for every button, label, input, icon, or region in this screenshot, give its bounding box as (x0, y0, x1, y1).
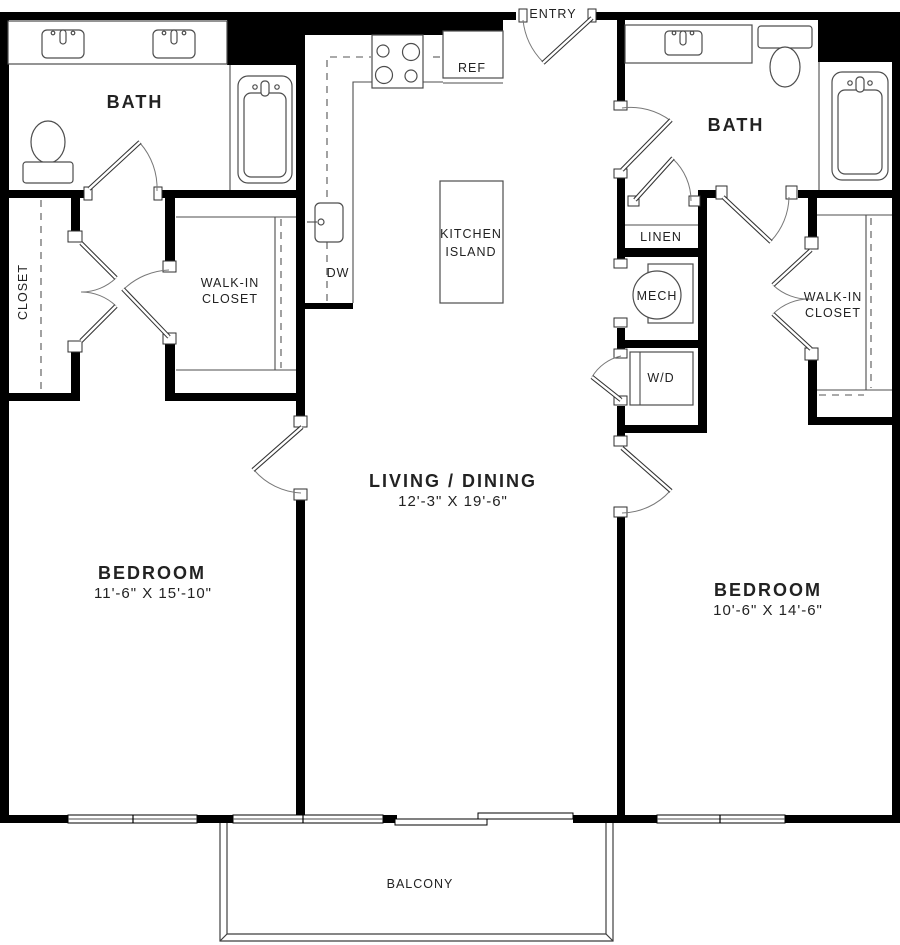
walls (0, 12, 900, 823)
sliding-door-panel (395, 819, 487, 825)
washer-dryer-label: W/D (647, 371, 674, 385)
linen-label: LINEN (640, 230, 682, 244)
floorplan-drawing: ENTRY BATH BATH REF DW KITCHEN ISLAND LI… (0, 0, 900, 945)
kitchen-island-label-1: KITCHEN (440, 227, 502, 241)
windows (68, 813, 785, 825)
floorplan-page: ENTRY BATH BATH REF DW KITCHEN ISLAND LI… (0, 0, 900, 945)
closet-left-label: CLOSET (16, 264, 30, 320)
walkin-left-label-1: WALK-IN (201, 276, 260, 290)
mech-label: MECH (637, 289, 678, 303)
sliding-door-panel (478, 813, 573, 819)
tub-faucet (856, 77, 864, 92)
faucet (680, 31, 686, 45)
kitchen-faucet (318, 219, 324, 225)
walkin-left-label-2: CLOSET (202, 292, 258, 306)
bedroom-right-label: BEDROOM (714, 580, 822, 600)
walkin-right-label-1: WALK-IN (804, 290, 863, 304)
entry-label: ENTRY (529, 7, 576, 21)
bath-left-label: BATH (107, 92, 164, 112)
labels: ENTRY BATH BATH REF DW KITCHEN ISLAND LI… (16, 7, 862, 891)
toilet-bowl (770, 47, 800, 87)
toilet-tank (758, 26, 812, 48)
living-dining-label: LIVING / DINING (369, 471, 537, 491)
faucet (60, 30, 66, 44)
bedroom-left-dims: 11'-6" X 15'-10" (94, 585, 212, 602)
ref-label: REF (458, 61, 486, 75)
bedroom-right-dims: 10'-6" X 14'-6" (713, 602, 823, 619)
faucet (171, 30, 177, 44)
bath-right-label: BATH (708, 115, 765, 135)
toilet-bowl (31, 121, 65, 163)
dw-label: DW (327, 266, 350, 280)
kitchen-island (440, 181, 503, 303)
balcony-label: BALCONY (387, 877, 454, 891)
living-dining-dims: 12'-3" X 19'-6" (398, 493, 508, 510)
tub-faucet (261, 81, 269, 96)
kitchen-island-label-2: ISLAND (445, 245, 496, 259)
bedroom-left-label: BEDROOM (98, 563, 206, 583)
toilet-tank (23, 162, 73, 183)
walkin-right-label-2: CLOSET (805, 306, 861, 320)
